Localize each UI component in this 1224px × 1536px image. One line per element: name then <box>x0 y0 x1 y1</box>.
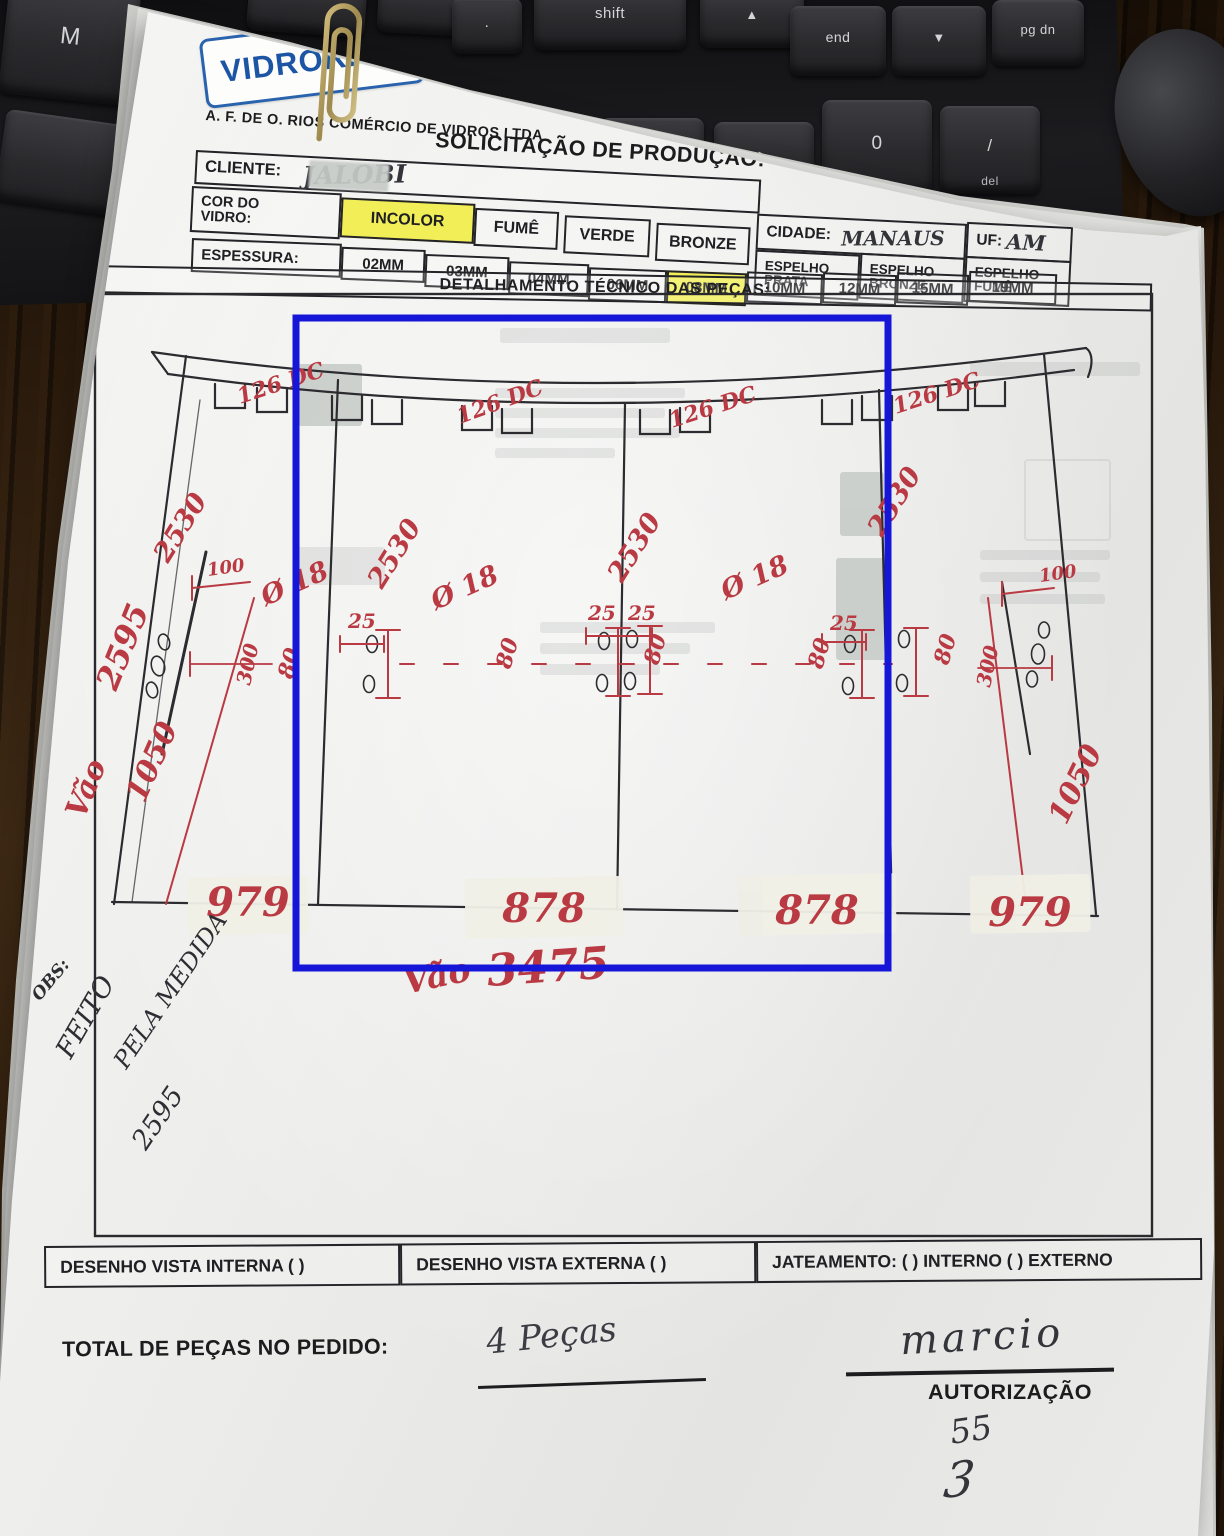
dim-25: 25 <box>587 601 616 625</box>
date-label: DATA: <box>808 113 859 133</box>
authorization-number: 55 <box>947 1407 994 1451</box>
panel-height-2530: 2530 <box>601 507 668 588</box>
authorization-signature: marcio <box>899 1310 1065 1365</box>
privacy-blur <box>308 160 389 192</box>
color-option-verde: VERDE <box>563 215 651 257</box>
notch-dim-126: 126 DC <box>890 367 984 420</box>
total-height-2595: 2595 <box>88 598 157 696</box>
glass-color-label: COR DO VIDRO: <box>190 186 342 239</box>
production-form: VIDRORIOS A. F. DE O. RIOS COMÉRCIO DE V… <box>0 0 1224 1536</box>
hole-diameter: Ø 18 <box>425 559 503 616</box>
dim-80: 80 <box>490 634 524 672</box>
vista-interna-box: DESENHO VISTA INTERNA ( ) <box>44 1244 400 1288</box>
hole-diameter: Ø 18 <box>715 549 793 606</box>
color-option-incolor: INCOLOR <box>340 197 476 243</box>
technical-sketch: 126 DC 126 DC 126 DC 126 DC 2530 2530 25… <box>40 292 1200 1244</box>
total-pieces-value: 4 Peças <box>484 1309 618 1362</box>
vista-externa-box: DESENHO VISTA EXTERNA ( ) <box>400 1241 756 1285</box>
dim-80: 80 <box>928 630 962 668</box>
panel-width: 979 <box>988 889 1072 936</box>
panel-width: 878 <box>501 885 586 932</box>
dim-100: 100 <box>206 555 247 581</box>
jateamento-box: JATEAMENTO: ( ) INTERNO ( ) EXTERNO <box>756 1238 1202 1283</box>
client-label: CLIENTE: <box>205 159 282 180</box>
dim-25: 25 <box>829 611 858 635</box>
total-pieces-label: TOTAL DE PEÇAS NO PEDIDO: <box>62 1335 389 1363</box>
dim-80: 80 <box>802 634 836 672</box>
panel-width: 878 <box>774 887 859 934</box>
dim-1050: 1050 <box>119 717 185 808</box>
dim-80: 80 <box>272 644 306 682</box>
dim-25: 25 <box>627 601 656 625</box>
vao-label-left: Vão <box>59 754 114 823</box>
uf-label: UF: <box>976 232 1003 250</box>
desk-photo: M . shift ▲ end ▼ pg dn ▼ ▶ 0ins /del VI… <box>0 0 1224 1536</box>
authorization-label: AUTORIZAÇÃO <box>928 1380 1092 1405</box>
dim-25: 25 <box>347 609 376 633</box>
city-label: CIDADE: <box>766 224 831 243</box>
dim-100: 100 <box>1038 561 1079 587</box>
total-underline <box>478 1378 706 1389</box>
date-value: 1º/07/25 <box>868 112 999 141</box>
paperclip-icon <box>291 0 393 149</box>
uf-value: AM <box>1006 231 1047 255</box>
dim-1050: 1050 <box>1042 739 1110 830</box>
city-value: MANAUS <box>841 228 944 249</box>
vao-total-label: Vão <box>400 950 475 1003</box>
date-box: DATA: 1º/07/25 <box>797 99 1071 155</box>
authorization-scribble: 3 <box>941 1450 977 1510</box>
dim-300: 300 <box>231 641 263 687</box>
color-option-fume: FUMÊ <box>473 208 559 250</box>
signature-line <box>846 1368 1114 1376</box>
